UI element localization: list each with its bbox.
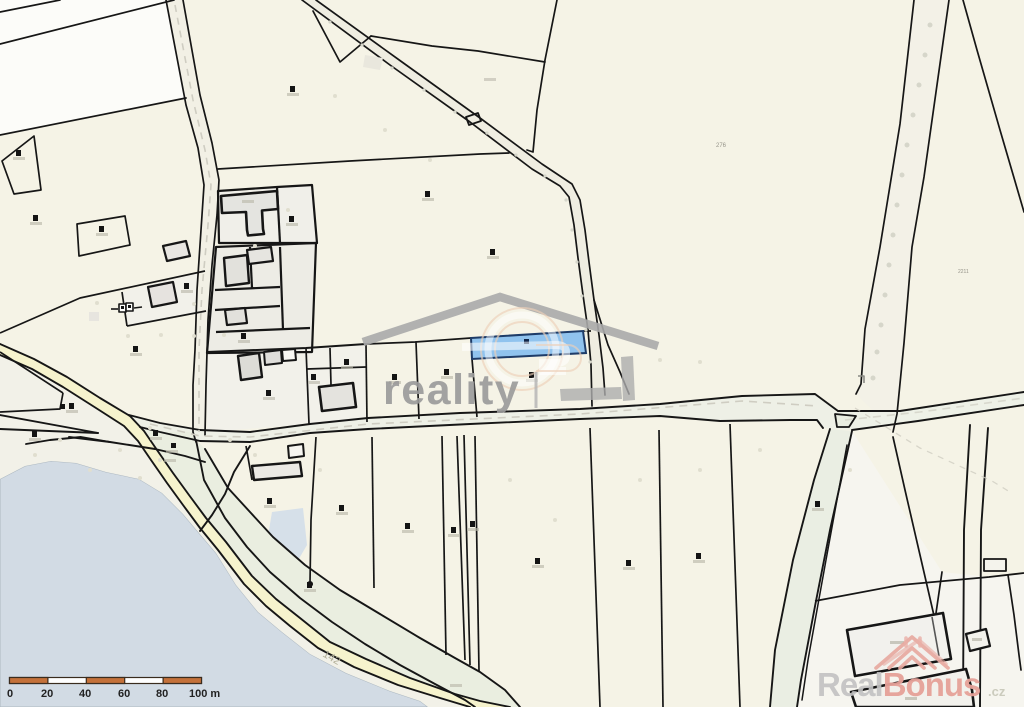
- svg-text:276: 276: [716, 143, 727, 149]
- svg-text:RealBonus: RealBonus: [817, 666, 980, 703]
- svg-text:reality: reality: [383, 366, 520, 414]
- svg-text:.cz: .cz: [988, 684, 1006, 699]
- svg-text:2211: 2211: [958, 269, 969, 275]
- svg-text:80: 80: [156, 688, 168, 700]
- svg-text:100 m: 100 m: [189, 688, 220, 700]
- svg-text:0: 0: [7, 688, 13, 700]
- svg-text:20: 20: [41, 688, 53, 700]
- svg-text:40: 40: [79, 688, 91, 700]
- svg-text:60: 60: [118, 688, 130, 700]
